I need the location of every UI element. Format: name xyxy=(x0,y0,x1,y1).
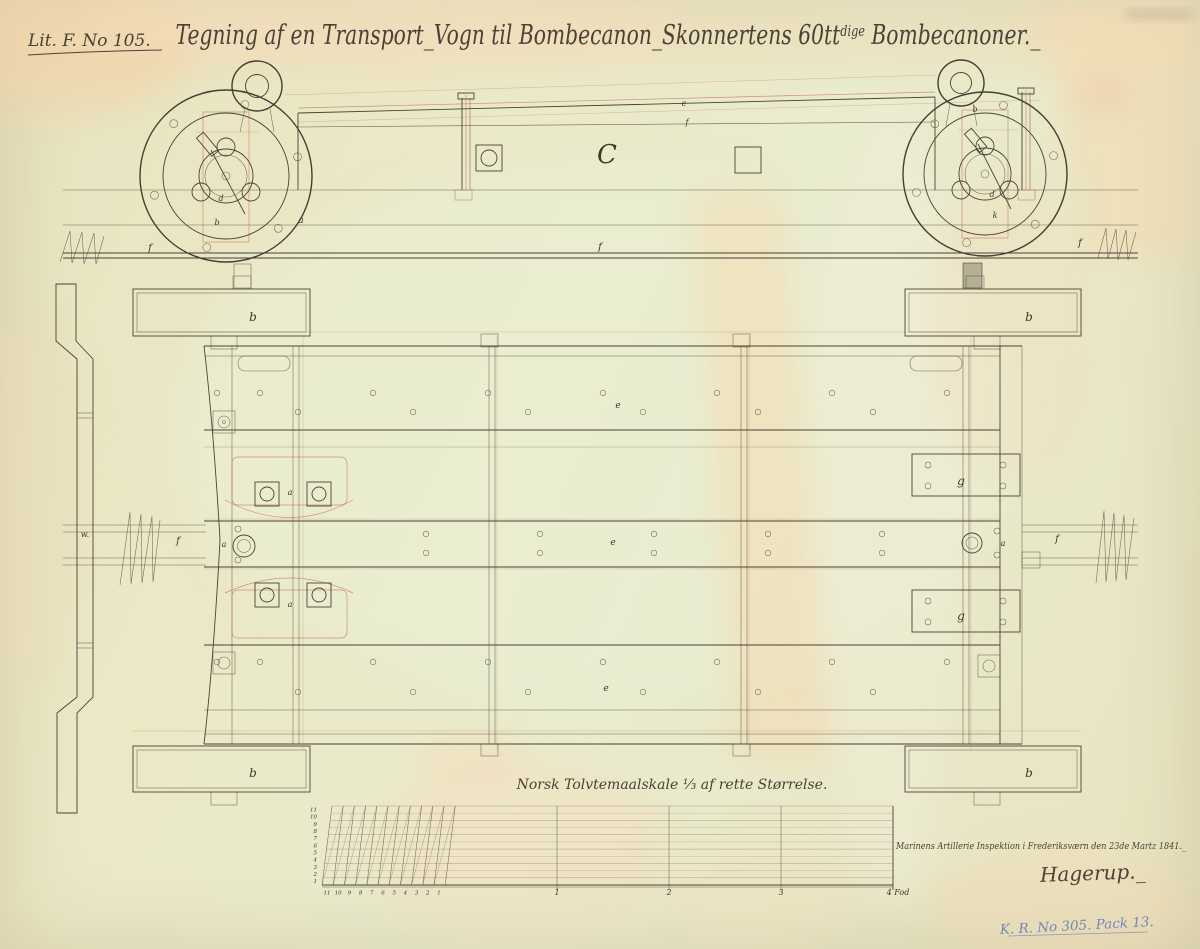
part-label-b: b xyxy=(972,105,977,114)
part-label-e: e xyxy=(603,684,608,694)
sheet-title: Tegning af en Transport_Vogn til Bombeca… xyxy=(176,20,1041,51)
scale-inch-left: 2 xyxy=(313,872,318,878)
scale-inch-bottom: 10 xyxy=(335,891,342,897)
part-label-w: w. xyxy=(81,530,89,539)
part-label-b: b xyxy=(249,310,257,324)
part-label-d: d xyxy=(989,190,994,199)
scale-inch-bottom: 3 xyxy=(415,891,419,897)
scale-inch-left: 5 xyxy=(314,851,318,857)
beam-bolt-plate xyxy=(476,145,502,171)
part-label-g: g xyxy=(957,474,965,488)
technical-drawing: 111098765432111109876543211234 Fod Lit. … xyxy=(0,0,1200,949)
scale-foot-mark: 2 xyxy=(665,888,671,897)
part-label-a: a xyxy=(1001,539,1006,548)
part-label-a: a xyxy=(222,540,227,549)
part-label-a: a xyxy=(298,216,303,226)
beam-mortise xyxy=(735,147,761,173)
inscription-line: Marinens Artillerie Inspektion i Frederi… xyxy=(895,841,1186,852)
part-label-e: e xyxy=(682,99,687,108)
scale-inch-bottom: 5 xyxy=(392,891,396,897)
scale-inch-left: 8 xyxy=(314,829,318,835)
part-label-e: e xyxy=(610,538,615,548)
scale-inch-left: 6 xyxy=(314,843,318,849)
part-label-k: k xyxy=(993,211,998,220)
scale-foot-mark: 3 xyxy=(778,888,783,897)
scale-inch-bottom: 2 xyxy=(425,891,430,897)
archive-reference: Lit. F. No 105. xyxy=(27,31,151,51)
part-label-f: f xyxy=(147,243,154,254)
scale-inch-bottom: 7 xyxy=(370,891,374,897)
scale-grid-line xyxy=(344,806,365,885)
signature: Hagerup._ xyxy=(1039,859,1146,887)
wheel-rim-left xyxy=(140,90,312,262)
break-zigzag-left xyxy=(60,231,104,264)
block-bottom-left xyxy=(133,746,310,792)
part-label-b: b xyxy=(214,218,219,227)
part-label-e: e xyxy=(615,401,620,411)
scale-inch-left: 3 xyxy=(314,865,318,871)
wheel-hub-left xyxy=(192,138,260,203)
wheel-bolts-left xyxy=(151,101,302,252)
scale-inch-bottom: 6 xyxy=(381,891,385,897)
part-label-d: d xyxy=(218,194,223,203)
scale-inch-left: 4 xyxy=(313,858,318,864)
part-label-f: f xyxy=(685,118,691,127)
scale-grid-line xyxy=(344,806,354,885)
scale-foot-mark: 1 xyxy=(554,888,559,897)
scale-grid-line xyxy=(322,806,343,885)
scale-grid-line xyxy=(356,806,366,885)
scale-grid-line xyxy=(322,806,332,885)
part-label-f: f xyxy=(1054,534,1061,545)
scale-grid-line xyxy=(333,806,343,885)
scale-inch-bottom: 8 xyxy=(359,891,363,897)
part-label-b: b xyxy=(1025,310,1033,324)
scale-inch-left: 9 xyxy=(314,822,318,828)
part-label-C: C xyxy=(597,140,617,170)
axle-break-right xyxy=(1096,511,1134,583)
scale-inch-bottom: 9 xyxy=(348,891,352,897)
part-label-a: a xyxy=(288,488,293,497)
scale-inch-bottom: 4 xyxy=(403,891,408,897)
faint-stamp xyxy=(1126,10,1192,19)
part-label-b: b xyxy=(1025,766,1033,780)
axle-break-left xyxy=(120,512,160,585)
scale-caption: Norsk Tolvtemaalskale ⅓ af rette Størrel… xyxy=(516,777,828,793)
part-label-f: f xyxy=(175,536,182,547)
scale-foot-mark: 4 Fod xyxy=(886,888,910,897)
scale-inch-bottom: 1 xyxy=(437,891,441,897)
part-label-b: b xyxy=(249,766,257,780)
scale-inch-left: 10 xyxy=(310,815,317,821)
scale-inch-bottom: 11 xyxy=(324,891,331,897)
part-label-a: a xyxy=(288,600,293,609)
scale-grid-line xyxy=(333,806,354,885)
scale-inch-left: 7 xyxy=(314,836,318,842)
drawing-sheet: 111098765432111109876543211234 Fod Lit. … xyxy=(0,0,1200,949)
scale-inch-left: 1 xyxy=(314,879,318,885)
scale-inch-left: 11 xyxy=(310,808,317,814)
part-label-g: g xyxy=(957,609,965,623)
